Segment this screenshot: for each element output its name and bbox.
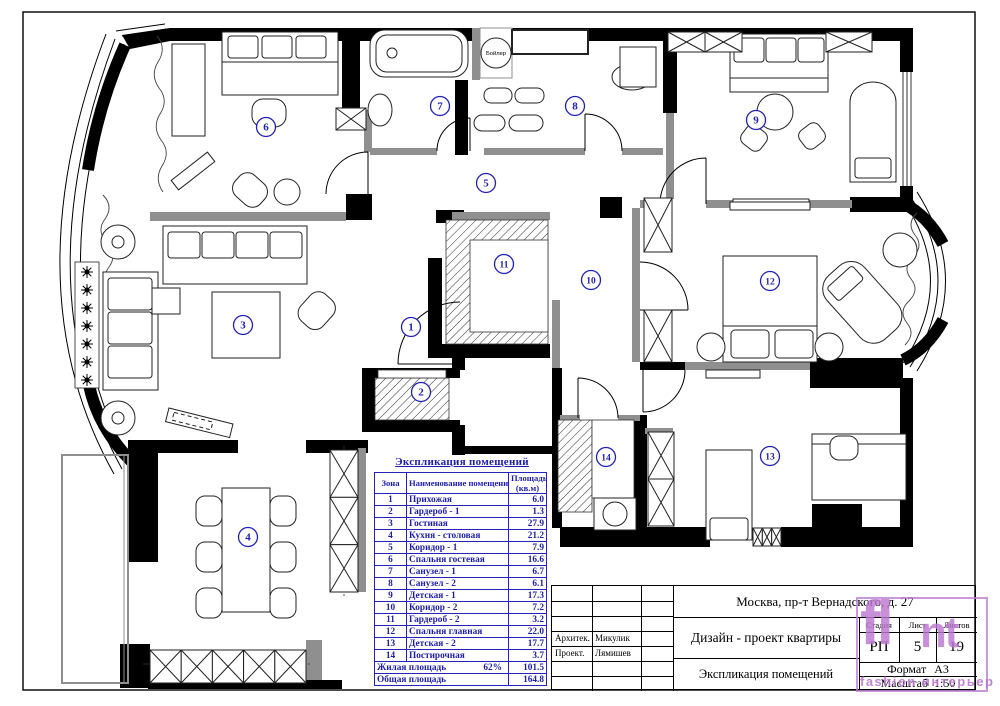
explication-row: 8Санузел - 26.1	[375, 578, 547, 590]
cell-area: 3.2	[509, 614, 547, 626]
cell-area: 21.2	[509, 530, 547, 542]
explication-block: Экспликация помещений Зона Наименование …	[374, 456, 550, 686]
sheet-label: Лист	[899, 617, 936, 632]
summary-area: 164.8	[509, 674, 547, 686]
explication-summary-row: Жилая площадь62%101.5	[375, 662, 547, 674]
room-number-4: 4	[245, 532, 251, 544]
cell-area: 3.7	[509, 650, 547, 662]
boiler-label: Бойлер	[486, 50, 506, 57]
title-block: Архитек. Микулик Проект. Лямишев Москва,…	[551, 585, 976, 690]
cell-area: 1.3	[509, 506, 547, 518]
cell-name: Детская - 1	[407, 590, 509, 602]
cell-name: Постирочная	[407, 650, 509, 662]
explication-row: 10Коридор - 27.2	[375, 602, 547, 614]
cell-zone: 3	[375, 518, 407, 530]
cell-name: Прихожая	[407, 494, 509, 506]
cell-zone: 4	[375, 530, 407, 542]
cell-area: 27.9	[509, 518, 547, 530]
room-number-7: 7	[437, 101, 443, 113]
cell-name: Гардероб - 1	[407, 506, 509, 518]
cell-area: 6.0	[509, 494, 547, 506]
room-number-11: 11	[500, 261, 509, 271]
summary-area: 101.5	[509, 662, 547, 674]
sheets-label: Листов	[936, 617, 977, 632]
room-number-13: 13	[765, 453, 775, 463]
explication-table: Зона Наименование помещения Площадь (кв.…	[374, 472, 547, 686]
sheet-value: 5	[899, 632, 936, 662]
cell-zone: 7	[375, 566, 407, 578]
explication-row: 14Постирочная3.7	[375, 650, 547, 662]
cell-zone: 13	[375, 638, 407, 650]
cell-name: Санузел - 2	[407, 578, 509, 590]
role-name-designer: Лямишев	[593, 646, 642, 661]
cell-area: 7.9	[509, 542, 547, 554]
format-row: ФорматА3	[859, 662, 977, 676]
cell-area: 22.0	[509, 626, 547, 638]
sheet-title: Экспликация помещений	[673, 658, 859, 691]
explication-row: 2Гардероб - 11.3	[375, 506, 547, 518]
explication-row: 4Кухня - столовая21.2	[375, 530, 547, 542]
room-number-3: 3	[240, 320, 246, 332]
cell-name: Гостиная	[407, 518, 509, 530]
cell-zone: 1	[375, 494, 407, 506]
cell-zone: 9	[375, 590, 407, 602]
cell-zone: 11	[375, 614, 407, 626]
room-number-12: 12	[765, 278, 775, 288]
stage-label: Стадия	[859, 617, 899, 632]
cell-area: 7.2	[509, 602, 547, 614]
explication-row: 12Спальня главная22.0	[375, 626, 547, 638]
cell-name: Гардероб - 2	[407, 614, 509, 626]
cell-zone: 8	[375, 578, 407, 590]
col-header-zone: Зона	[375, 473, 407, 494]
summary-name: Общая площадь	[375, 674, 509, 686]
cell-zone: 5	[375, 542, 407, 554]
sheets-value: 19	[936, 632, 977, 662]
project-title: Дизайн - проект квартиры	[673, 617, 859, 658]
cell-zone: 2	[375, 506, 407, 518]
cell-zone: 10	[375, 602, 407, 614]
cell-name: Санузел - 1	[407, 566, 509, 578]
cell-area: 17.7	[509, 638, 547, 650]
cell-zone: 12	[375, 626, 407, 638]
col-header-name: Наименование помещения	[407, 473, 509, 494]
room-number-6: 6	[263, 122, 269, 134]
cell-name: Коридор - 1	[407, 542, 509, 554]
cell-name: Спальня главная	[407, 626, 509, 638]
cell-zone: 6	[375, 554, 407, 566]
explication-row: 5Коридор - 17.9	[375, 542, 547, 554]
explication-row: 6Спальня гостевая16.6	[375, 554, 547, 566]
cell-name: Спальня гостевая	[407, 554, 509, 566]
col-header-area: Площадь (кв.м)	[509, 473, 547, 494]
explication-row: 3Гостиная27.9	[375, 518, 547, 530]
room-number-1: 1	[408, 322, 414, 334]
window-glazing-right-wall	[903, 72, 911, 186]
role-label-designer: Проект.	[553, 646, 593, 661]
living-area-percent: 62%	[483, 663, 502, 673]
stage-value: РП	[859, 632, 899, 662]
explication-row: 11Гардероб - 23.2	[375, 614, 547, 626]
room-number-10: 10	[586, 277, 596, 287]
project-address: Москва, пр-т Вернадского, д. 27	[673, 586, 977, 617]
cell-area: 16.6	[509, 554, 547, 566]
room-number-8: 8	[572, 101, 578, 113]
cell-area: 17.3	[509, 590, 547, 602]
role-label-architect: Архитек.	[553, 631, 593, 646]
explication-title: Экспликация помещений	[374, 456, 550, 468]
scale-row: Масштаб1:50	[859, 676, 977, 691]
cell-zone: 14	[375, 650, 407, 662]
summary-name: Жилая площадь62%	[375, 662, 509, 674]
cell-name: Коридор - 2	[407, 602, 509, 614]
room-number-2: 2	[418, 387, 424, 399]
role-name-architect: Микулик	[593, 631, 642, 646]
explication-summary-row: Общая площадь164.8	[375, 674, 547, 686]
explication-row: 9Детская - 117.3	[375, 590, 547, 602]
cell-name: Кухня - столовая	[407, 530, 509, 542]
cell-name: Детская - 2	[407, 638, 509, 650]
cell-area: 6.1	[509, 578, 547, 590]
right-bay-window	[903, 192, 946, 371]
explication-row: 7Санузел - 16.7	[375, 566, 547, 578]
room-number-14: 14	[601, 454, 611, 464]
drawing-sheet: Бойлер 1234567891011121314 Экспликация п…	[0, 0, 1000, 706]
explication-row: 13Детская - 217.7	[375, 638, 547, 650]
cell-area: 6.7	[509, 566, 547, 578]
explication-row: 1Прихожая6.0	[375, 494, 547, 506]
room-number-9: 9	[753, 115, 759, 127]
room-number-5: 5	[483, 178, 489, 190]
